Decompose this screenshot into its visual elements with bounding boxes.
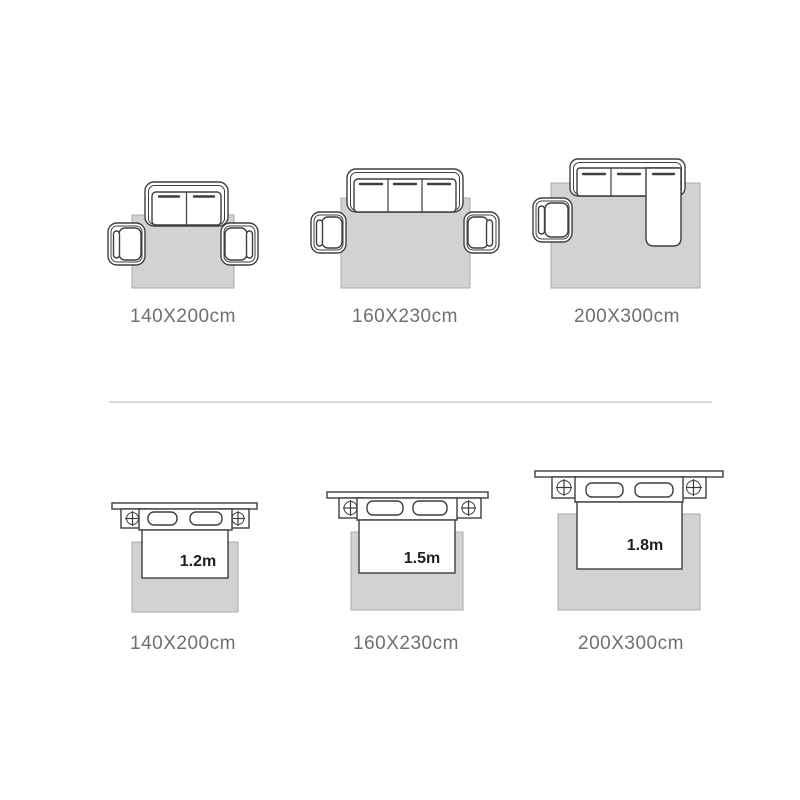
pillow: [148, 512, 177, 525]
headboard: [535, 471, 723, 477]
bed-width-label: 1.2m: [180, 553, 216, 570]
armchair-left-icon: [108, 223, 145, 265]
headboard: [327, 492, 488, 498]
bed-panel-200x300: 1.8m 200X300cm: [535, 471, 723, 654]
bed-panel-140x200: 1.2m 140X200cm: [112, 503, 257, 654]
armchair-seat: [468, 217, 488, 248]
armchair-left-icon: [311, 212, 346, 253]
sofa-panel-200x300: 200X300cm: [533, 159, 700, 327]
armchair-back-pill: [114, 231, 120, 258]
headboard: [112, 503, 257, 509]
armchair-right-icon: [221, 223, 258, 265]
rug-size-label: 160X230cm: [353, 633, 459, 654]
bed-panel-160x230: 1.5m 160X230cm: [327, 492, 488, 654]
pillow: [190, 512, 222, 525]
armchair-seat: [545, 203, 568, 237]
bed-width-label: 1.5m: [404, 550, 440, 567]
armchair-back-pill: [247, 231, 253, 258]
rug-size-label: 140X200cm: [130, 633, 236, 654]
armchair-back-pill: [317, 220, 323, 246]
armchair-right-icon: [464, 212, 499, 253]
nightstand-right-icon: [681, 477, 706, 498]
pillow: [635, 483, 673, 497]
sofa-panel-140x200: 140X200cm: [108, 182, 258, 327]
rug-size-label: 140X200cm: [130, 306, 236, 327]
pillow: [367, 501, 403, 515]
pillow: [413, 501, 447, 515]
bed-width-label: 1.8m: [627, 537, 663, 554]
rug-size-label: 200X300cm: [578, 633, 684, 654]
armchair-left-icon: [533, 198, 572, 242]
three-seat-sofa-icon: [347, 169, 463, 212]
chaise-extension: [646, 168, 681, 246]
bed-body: [577, 502, 682, 569]
two-seat-sofa-icon: [145, 182, 228, 226]
armchair-back-pill: [539, 206, 545, 234]
sofa-panel-160x230: 160X230cm: [311, 169, 499, 327]
pillow: [586, 483, 623, 497]
size-guide-canvas: 140X200cm 160X230cm: [0, 0, 800, 800]
rug-size-label: 160X230cm: [352, 306, 458, 327]
rug-size-guide-image: 140X200cm 160X230cm: [0, 0, 800, 800]
armchair-back-pill: [487, 220, 493, 246]
armchair-seat: [119, 228, 141, 260]
nightstand-left-icon: [552, 477, 577, 498]
armchair-seat: [225, 228, 247, 260]
armchair-seat: [322, 217, 342, 248]
nightstand-right-icon: [456, 498, 481, 518]
rug-size-label: 200X300cm: [574, 306, 680, 327]
